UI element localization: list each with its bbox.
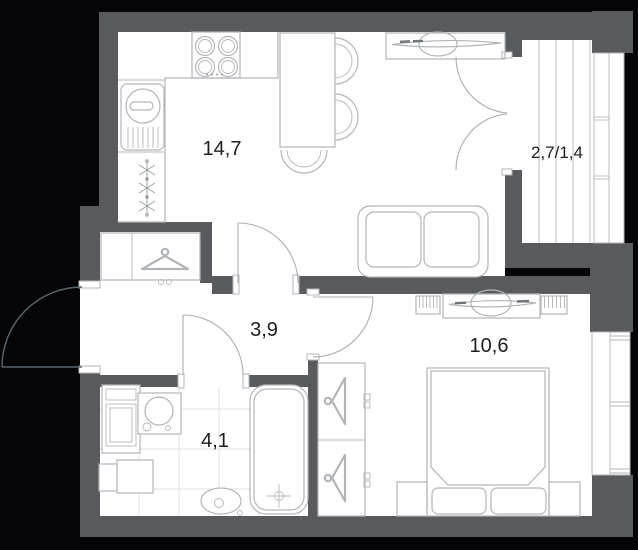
wall-bottom — [80, 516, 633, 537]
bathtub — [250, 385, 308, 514]
wall-hall-bedroom-pillar — [308, 355, 318, 516]
entry-jamb-bottom — [79, 366, 100, 373]
room-label-kitchen-living: 14,7 — [203, 138, 242, 160]
wall-right-mid-block — [590, 268, 633, 332]
bathroom-sink-icon — [138, 393, 181, 434]
floor-plan-stage: 14,7 2,7/1,4 3,9 4,1 10,6 — [0, 0, 638, 550]
french-door-jamb-top — [502, 52, 512, 58]
bedroom-door-jamb-top — [307, 289, 319, 295]
room-bedroom-floor — [318, 294, 592, 516]
faucet-icon — [130, 102, 153, 110]
wall-top-balcony — [512, 12, 592, 40]
washing-machine — [102, 385, 140, 453]
entry-jamb-top — [79, 281, 100, 288]
wall-closet-top — [99, 222, 212, 232]
wall-left-lower — [80, 367, 100, 537]
wall-left-upper — [99, 12, 118, 232]
room-label-bathroom: 4,1 — [201, 430, 229, 452]
bathroom-door-jamb-right — [243, 374, 249, 388]
sofa — [358, 206, 488, 277]
french-door-jamb-bottom — [502, 169, 512, 175]
bathroom-cabinet — [99, 460, 153, 493]
bedroom-window — [592, 332, 630, 475]
room-label-balcony: 2,7/1,4 — [531, 143, 583, 162]
french-door-opening — [505, 57, 522, 170]
bedroom-door-opening — [308, 294, 318, 355]
room-label-bedroom: 10,6 — [470, 335, 509, 357]
wall-top — [99, 12, 512, 32]
wall-top-right-corner — [592, 11, 633, 53]
wall-closet-pillar — [200, 232, 212, 283]
bathroom-door-opening — [183, 375, 243, 387]
wall-balcony-bottom — [505, 243, 633, 268]
wall-right-lower-block — [592, 475, 633, 520]
room-label-hallway: 3,9 — [250, 319, 278, 341]
bathroom-door-jamb-left — [178, 374, 184, 388]
wall-balcony-left — [505, 170, 522, 243]
wall-living-bedroom — [298, 276, 592, 294]
entry-door-opening — [80, 287, 100, 367]
wall-left-mid — [80, 206, 100, 287]
floor-plan-svg: 14,7 2,7/1,4 3,9 4,1 10,6 — [0, 0, 638, 550]
